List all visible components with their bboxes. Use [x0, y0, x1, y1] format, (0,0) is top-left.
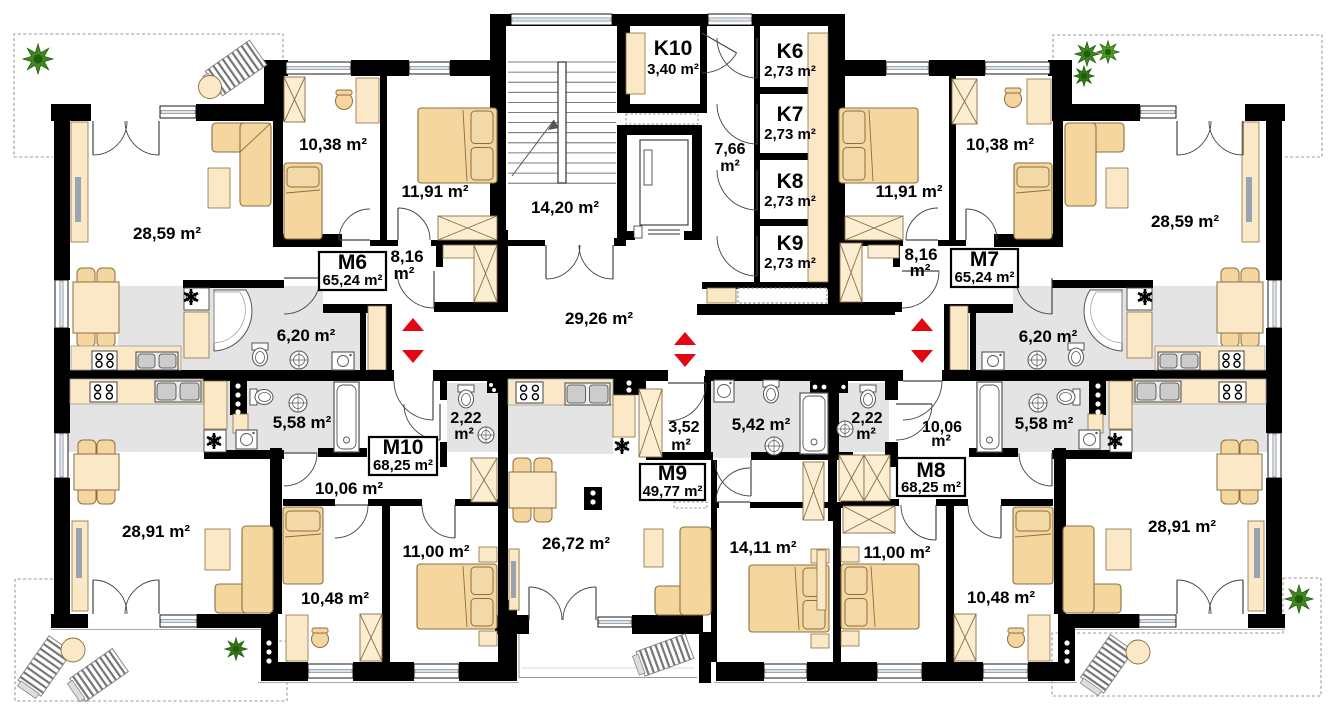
svg-text:2,73 m²: 2,73 m²	[764, 255, 816, 272]
svg-text:6,20 m²: 6,20 m²	[1019, 327, 1078, 346]
svg-text:6,20 m²: 6,20 m²	[277, 326, 336, 345]
svg-text:11,00 m²: 11,00 m²	[402, 542, 469, 561]
svg-text:m²: m²	[394, 264, 415, 283]
svg-text:10,48 m²: 10,48 m²	[301, 589, 369, 608]
svg-text:28,59 m²: 28,59 m²	[1151, 212, 1219, 231]
svg-text:m²: m²	[720, 158, 740, 175]
svg-text:3,40 m²: 3,40 m²	[647, 61, 699, 78]
svg-text:m²: m²	[454, 426, 474, 443]
svg-text:26,72 m²: 26,72 m²	[542, 534, 610, 553]
svg-text:10,48 m²: 10,48 m²	[967, 588, 1035, 607]
svg-text:10,06 m²: 10,06 m²	[315, 479, 383, 498]
svg-text:14,20 m²: 14,20 m²	[531, 198, 599, 217]
svg-text:m²: m²	[931, 433, 951, 450]
svg-text:2,22: 2,22	[851, 410, 882, 427]
svg-text:7,66: 7,66	[714, 141, 745, 158]
svg-text:m²: m²	[671, 437, 691, 454]
svg-text:M9: M9	[658, 462, 687, 485]
svg-text:3,52: 3,52	[668, 419, 699, 436]
svg-text:65,24 m²: 65,24 m²	[954, 269, 1014, 286]
svg-text:2,73 m²: 2,73 m²	[764, 193, 816, 210]
svg-text:28,59 m²: 28,59 m²	[133, 224, 201, 243]
svg-text:68,25 m²: 68,25 m²	[901, 479, 961, 496]
svg-text:M6: M6	[338, 251, 367, 274]
svg-text:K6: K6	[777, 40, 804, 63]
svg-text:49,77 m²: 49,77 m²	[642, 483, 702, 500]
svg-text:m²: m²	[856, 426, 876, 443]
svg-text:11,91 m²: 11,91 m²	[401, 182, 468, 201]
svg-text:K7: K7	[777, 103, 804, 126]
svg-text:10,38 m²: 10,38 m²	[299, 135, 367, 154]
svg-text:11,91 m²: 11,91 m²	[875, 182, 942, 201]
svg-text:5,58 m²: 5,58 m²	[273, 413, 332, 432]
svg-text:2,73 m²: 2,73 m²	[764, 63, 816, 80]
svg-text:65,24 m²: 65,24 m²	[322, 272, 382, 289]
svg-text:K9: K9	[777, 232, 804, 255]
svg-text:68,25 m²: 68,25 m²	[373, 457, 433, 474]
svg-text:28,91 m²: 28,91 m²	[122, 522, 190, 541]
svg-text:5,58 m²: 5,58 m²	[1015, 414, 1074, 433]
svg-text:29,26 m²: 29,26 m²	[565, 309, 633, 328]
svg-text:2,22: 2,22	[450, 410, 481, 427]
svg-text:11,00 m²: 11,00 m²	[863, 543, 930, 562]
svg-text:M7: M7	[970, 248, 999, 271]
svg-text:K8: K8	[777, 170, 804, 193]
svg-text:5,42 m²: 5,42 m²	[732, 415, 791, 434]
svg-text:2,73 m²: 2,73 m²	[764, 126, 816, 143]
svg-text:28,91 m²: 28,91 m²	[1148, 517, 1216, 536]
svg-text:m²: m²	[910, 261, 931, 280]
svg-text:M10: M10	[383, 436, 424, 459]
svg-text:14,11 m²: 14,11 m²	[729, 538, 796, 557]
svg-text:K10: K10	[654, 37, 693, 60]
svg-text:10,38 m²: 10,38 m²	[966, 135, 1034, 154]
